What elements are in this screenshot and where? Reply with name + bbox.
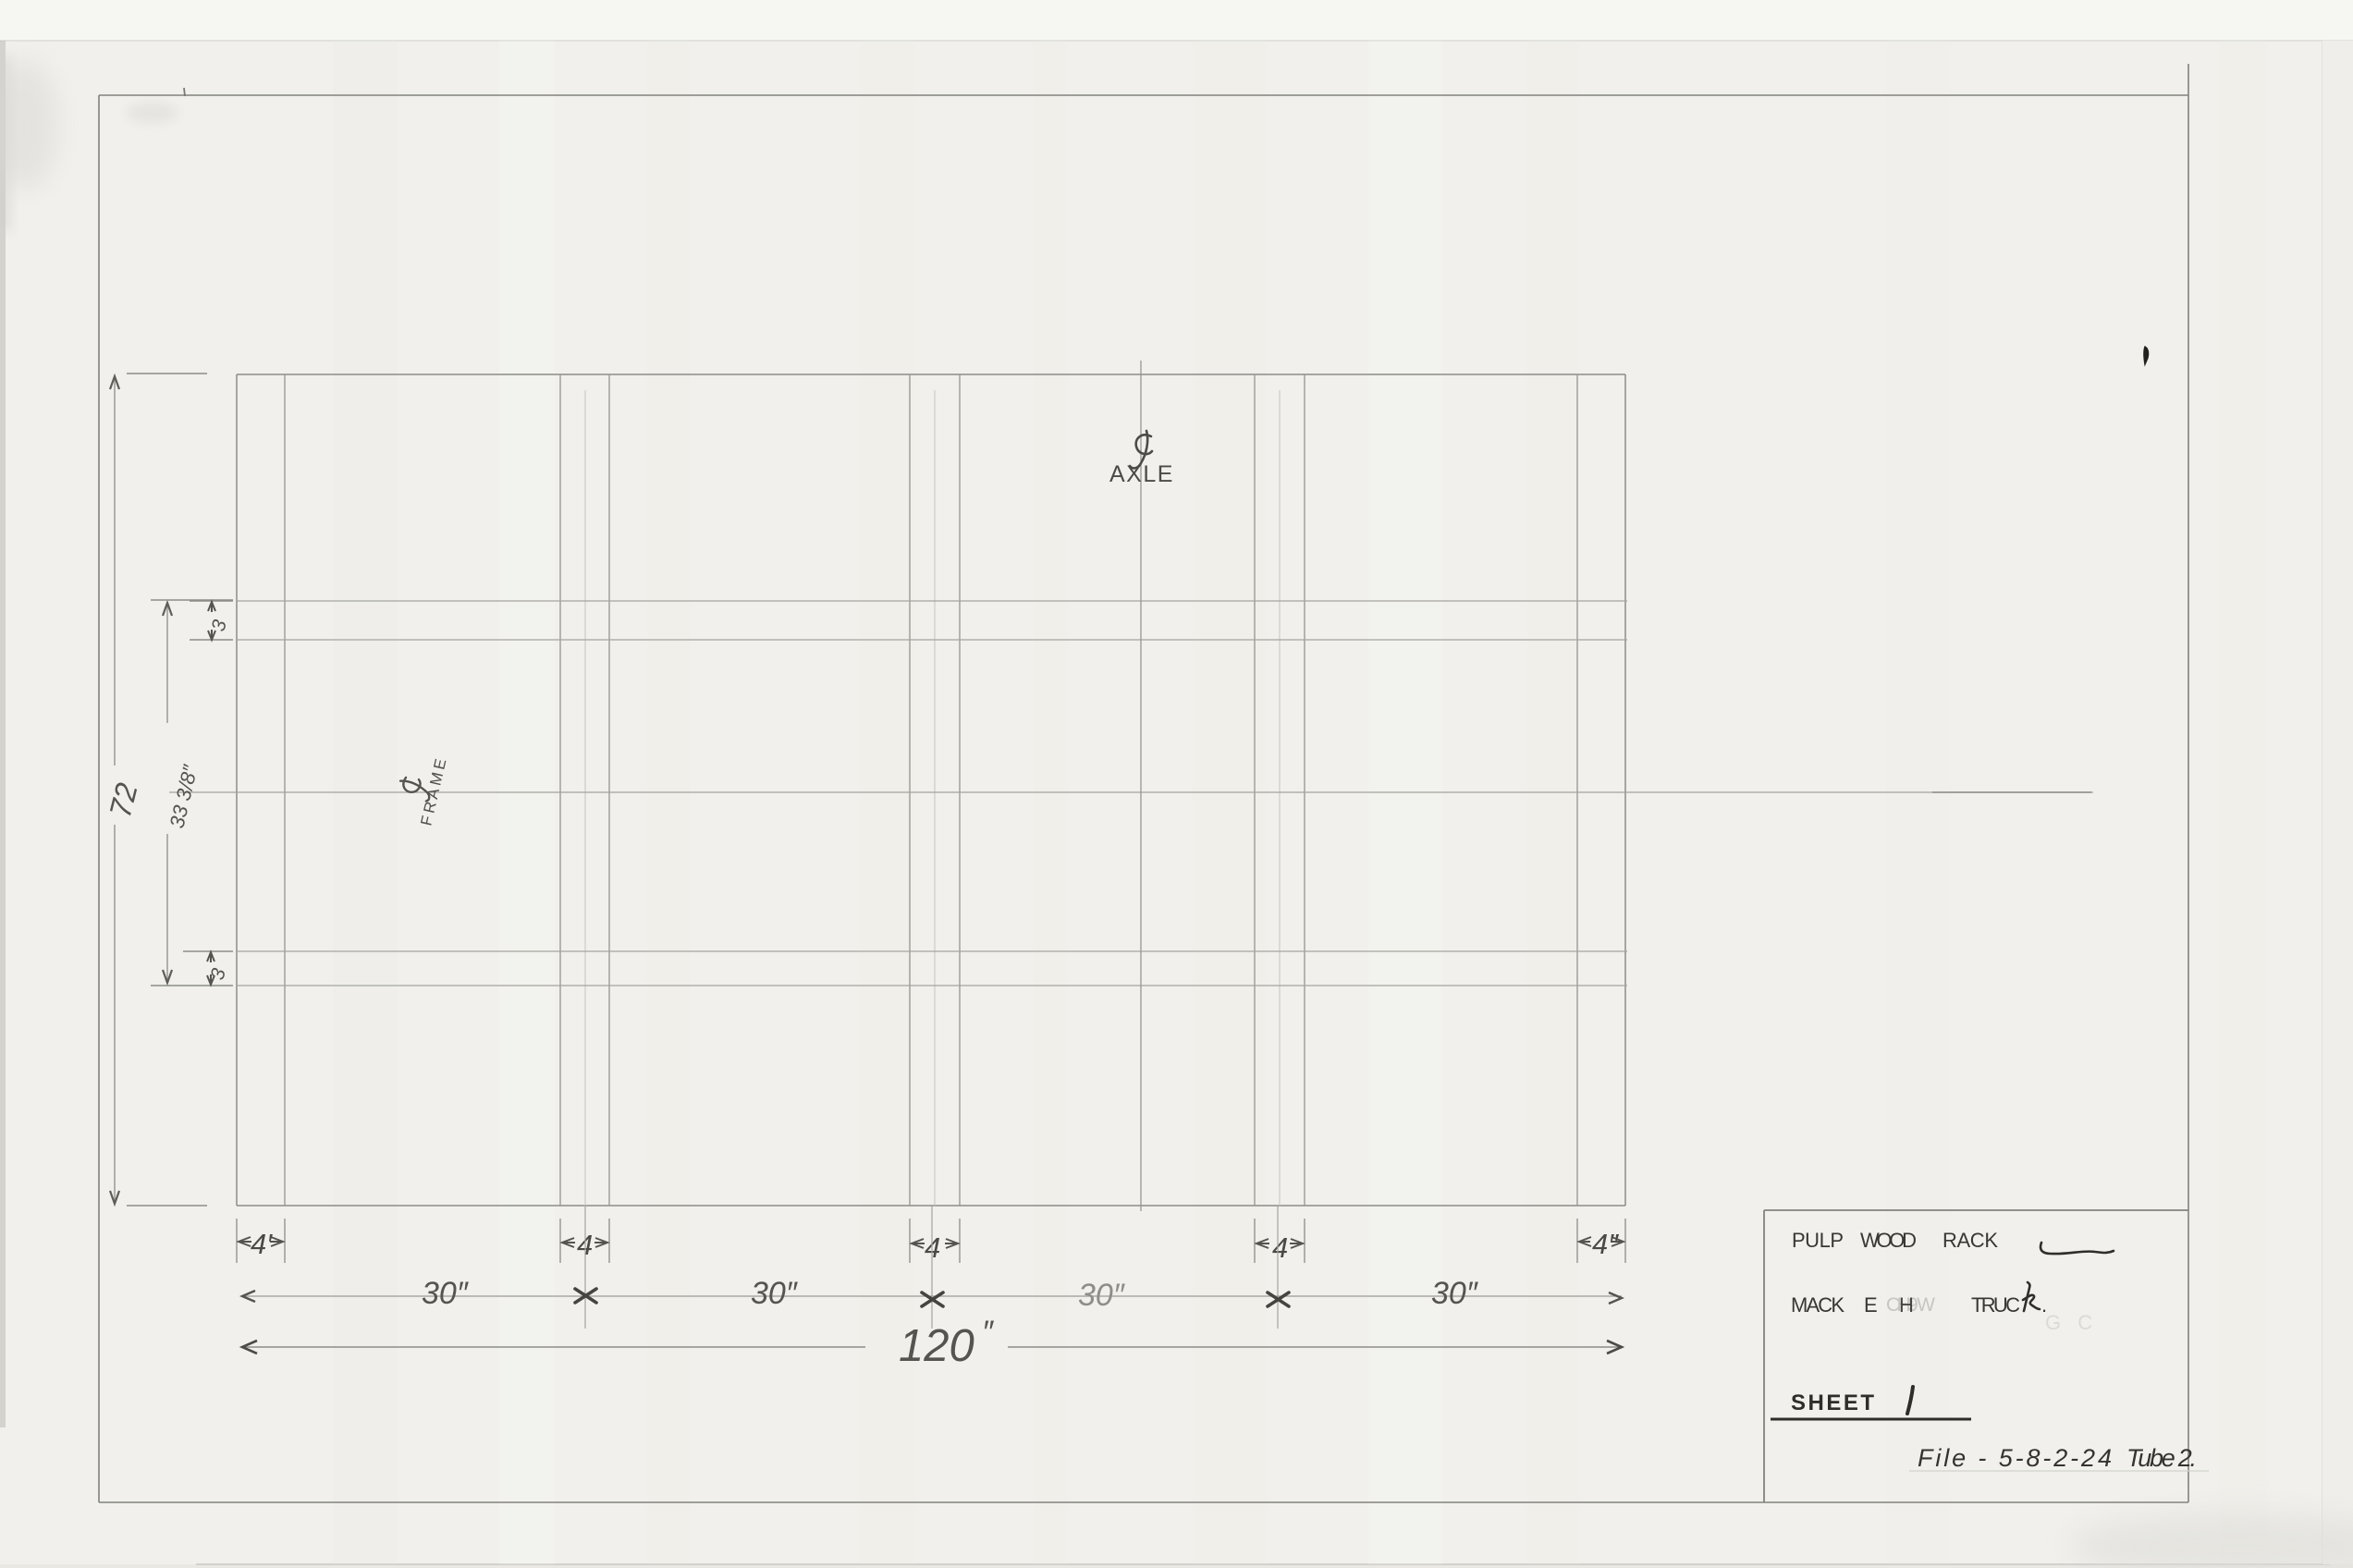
svg-text:SHEET: SHEET [1791,1390,1877,1415]
svg-text:″: ″ [982,1315,994,1350]
svg-text:PULP: PULP [1792,1229,1845,1252]
svg-text:G C: G C [2045,1311,2098,1334]
svg-text:AXLE: AXLE [1109,461,1174,487]
svg-text:E: E [1864,1293,1878,1317]
svg-text:4: 4 [1272,1231,1288,1264]
svg-text:4″: 4″ [1592,1228,1619,1260]
svg-text:Tube 2.: Tube 2. [2126,1444,2197,1472]
svg-text:WOOD: WOOD [1860,1229,1918,1252]
svg-text:30″: 30″ [422,1276,469,1311]
svg-text:H: H [1899,1293,1914,1317]
svg-text:4′: 4′ [251,1228,273,1260]
svg-text:RACK: RACK [1942,1229,2000,1252]
svg-text:30″: 30″ [1431,1276,1478,1311]
svg-text:File - 5-8-2-24: File - 5-8-2-24 [1918,1444,2112,1472]
svg-text:MACK: MACK [1791,1293,1846,1317]
svg-text:30″: 30″ [751,1276,798,1311]
svg-text:TRUC: TRUC [1971,1293,2022,1317]
svg-text:120: 120 [899,1321,974,1371]
svg-text:30″: 30″ [1078,1278,1125,1313]
svg-text:4: 4 [925,1231,940,1264]
